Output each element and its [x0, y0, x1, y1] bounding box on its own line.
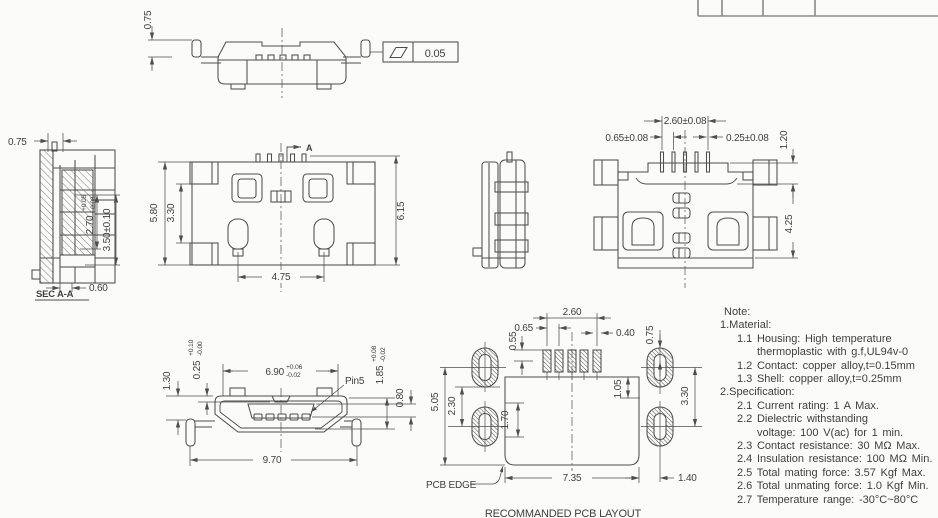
dim-leg-drop: 1.30: [162, 371, 173, 390]
dim-cutout-width: 7.35: [563, 473, 582, 484]
svg-text:6.90: 6.90: [265, 367, 284, 378]
dim-body-depth: 4.25: [784, 214, 795, 233]
dim-front-step: 1.20: [779, 130, 790, 149]
note-line: 2.7 Temperature range: -30°C~80°C: [718, 494, 936, 507]
section-aa-view: 0.75 2.70 +0.05 -0.08 3.50±0.10: [8, 133, 120, 300]
dim-height: 3.50±0.10: [102, 208, 113, 251]
bottom-view: 2.60±0.08 0.65±0.08 0.25±0.08 1.20: [594, 114, 799, 288]
section-label: SEC A-A: [36, 289, 74, 300]
dim-tab-span: 3.30: [166, 203, 177, 222]
engineering-drawing-page: { "colors": { "background": "#fbfbfa", "…: [0, 0, 938, 518]
pcb-layout-view: 2.60 0.65 0.40 0.55: [426, 306, 702, 518]
note-line: 2.1 Current rating: 1 A Max.: [718, 400, 936, 413]
dim-tongue-height: 0.80: [395, 388, 406, 407]
dim-pad-row-edge: 1.05: [613, 379, 624, 398]
note-line: 2.2 Dielectric withstanding: [718, 413, 936, 426]
note-line: 2.4 Insulation resistance: 100 MΩ Min.: [718, 453, 936, 466]
svg-text:+0.06: +0.06: [286, 364, 303, 371]
svg-text:2.70: 2.70: [85, 215, 96, 234]
dim-pin-offset: 0.75: [8, 137, 27, 148]
pcb-layout-caption: RECOMMANDED PCB LAYOUT: [485, 508, 642, 518]
note-line: 1.1 Housing: High temperature: [718, 333, 936, 346]
corner-tabs: [190, 162, 375, 265]
hatch-region-left: [40, 150, 53, 283]
top-view: A 5.80 3.30 6.15: [149, 143, 407, 292]
dim-opening: 6.90 +0.06 -0.02: [265, 364, 302, 379]
note-line: voltage: 100 V(ac) for 1 min.: [718, 427, 936, 440]
dim-pin-width: 0.25±0.08: [726, 133, 769, 144]
dim-cutout-depth: 1.70: [500, 410, 511, 429]
title-block-fragment: [698, 0, 938, 16]
dim-pad-inset: 0.55: [508, 331, 519, 350]
note-line: 2.Specification:: [718, 386, 936, 399]
dim-pad-span: 2.60: [563, 307, 582, 318]
dim-shell-width: 5.80: [149, 203, 160, 222]
dim-pin-pitch: 0.65±0.08: [605, 133, 648, 144]
svg-text:+0.08: +0.08: [371, 345, 378, 362]
dim-dimple: 0.25 +0.10 -0.00: [188, 339, 204, 379]
pin5-label: Pin5: [345, 376, 365, 387]
svg-text:-0.00: -0.00: [197, 341, 204, 356]
front-view: 1.30 0.25 +0.10 -0.00: [162, 339, 416, 466]
body-outline: [192, 162, 375, 265]
flatness-value: 0.05: [425, 48, 446, 60]
dim-pad-edge: 0.75: [645, 325, 656, 344]
notes-heading: Note:: [718, 306, 936, 319]
dim-hole-span: 3.30: [680, 386, 691, 405]
note-line: 2.3 Contact resistance: 30 MΩ Max.: [718, 440, 936, 453]
dim-pad-width: 0.40: [616, 328, 635, 339]
svg-text:+0.05: +0.05: [81, 194, 88, 211]
svg-text:-0.02: -0.02: [286, 372, 301, 379]
dim-foot: 0.60: [89, 283, 108, 294]
svg-text:0.25: 0.25: [192, 360, 203, 379]
shield-tabs: [594, 160, 777, 250]
dim-tongue-depth: 1.85 +0.08 -0.02: [371, 345, 387, 384]
note-line: 1.Material:: [718, 319, 936, 332]
body-outline: [618, 163, 753, 268]
note-line: 1.2 Contact: copper alloy,t=0.15mm: [718, 360, 936, 373]
flatness-callout: 0.05: [370, 42, 458, 62]
dim-pin-span: 2.60±0.08: [664, 116, 707, 127]
note-line: 1.3 Shell: copper alloy,t=0.25mm: [718, 373, 936, 386]
dim-hole-inset: 2.30: [447, 396, 458, 415]
dim-peg-pitch: 4.75: [272, 272, 291, 283]
svg-text:-0.02: -0.02: [380, 347, 387, 362]
svg-text:1.85: 1.85: [375, 365, 386, 384]
center-contacts: [673, 193, 690, 258]
contact-row: [256, 55, 310, 60]
dim-overall-depth: 6.15: [396, 201, 407, 220]
front-elevation-view: 0.75 0.05: [143, 10, 458, 98]
section-arrow-label: A: [306, 143, 313, 153]
note-line: 2.6 Total unmating force: 1.0 Kgf Min.: [718, 480, 936, 493]
svg-text:-0.08: -0.08: [90, 196, 97, 211]
svg-text:+0.10: +0.10: [188, 339, 195, 356]
dim-leg-height: 0.75: [143, 10, 154, 29]
note-line: 2.5 Total mating force: 3.57 Kgf Max.: [718, 467, 936, 480]
note-line: thermoplastic with g.f,UL94v-0: [718, 346, 936, 359]
pcb-edge-label: PCB EDGE: [426, 480, 477, 491]
notes-block: Note: 1.Material: 1.1 Housing: High temp…: [718, 306, 936, 507]
dim-overall-width: 9.70: [263, 455, 282, 466]
flatness-icon: [390, 48, 407, 58]
side-view: [473, 152, 528, 268]
dim-hole-edge: 1.40: [678, 473, 697, 484]
dim-left-span: 5.05: [430, 392, 441, 411]
